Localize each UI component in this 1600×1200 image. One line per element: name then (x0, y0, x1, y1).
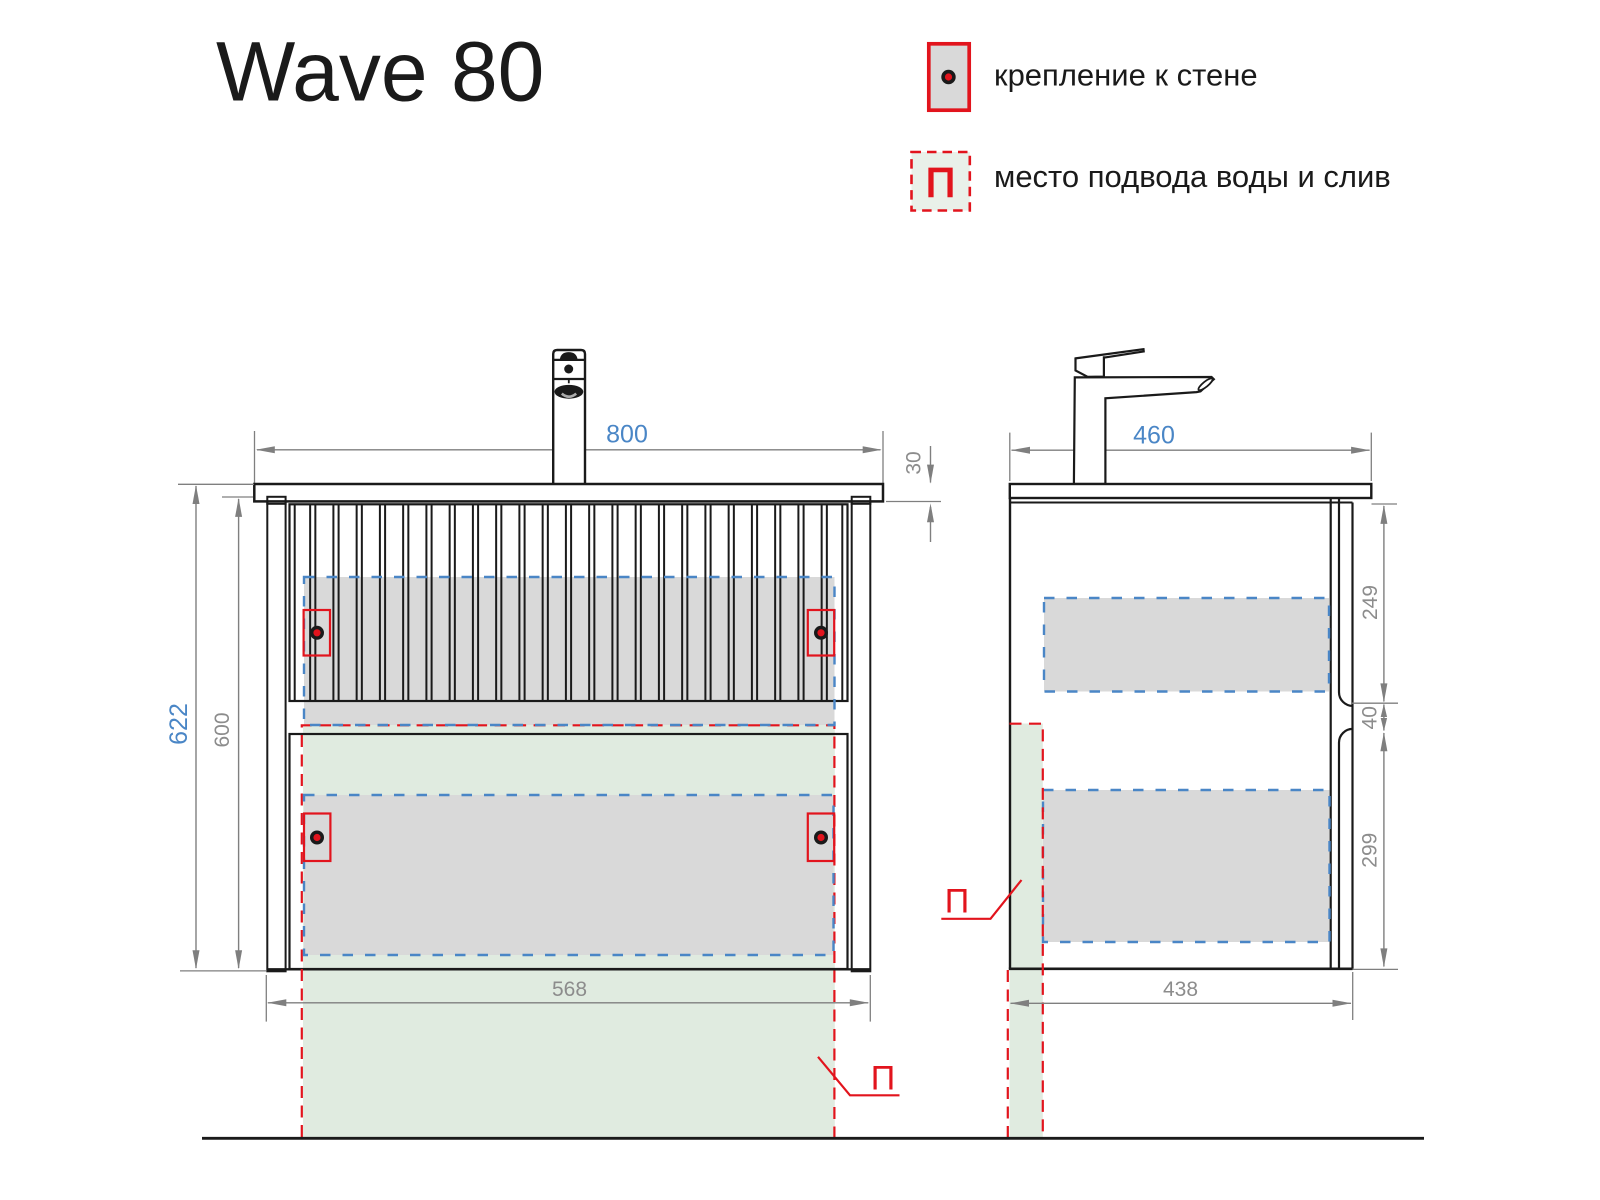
svg-text:40: 40 (1358, 706, 1381, 729)
svg-text:299: 299 (1358, 833, 1381, 868)
svg-text:место подвода воды и слив: место подвода воды и слив (994, 159, 1391, 194)
svg-text:800: 800 (606, 421, 648, 449)
svg-text:249: 249 (1359, 585, 1382, 620)
svg-text:622: 622 (165, 703, 193, 745)
svg-text:438: 438 (1163, 978, 1198, 1001)
svg-text:568: 568 (552, 978, 587, 1001)
svg-text:Wave 80: Wave 80 (216, 25, 544, 119)
svg-text:30: 30 (903, 451, 926, 474)
svg-text:600: 600 (211, 712, 234, 747)
svg-text:П: П (926, 160, 955, 206)
svg-text:460: 460 (1133, 422, 1175, 450)
svg-text:П: П (945, 883, 969, 921)
svg-text:П: П (871, 1060, 895, 1098)
svg-text:крепление к стене: крепление к стене (994, 58, 1258, 93)
